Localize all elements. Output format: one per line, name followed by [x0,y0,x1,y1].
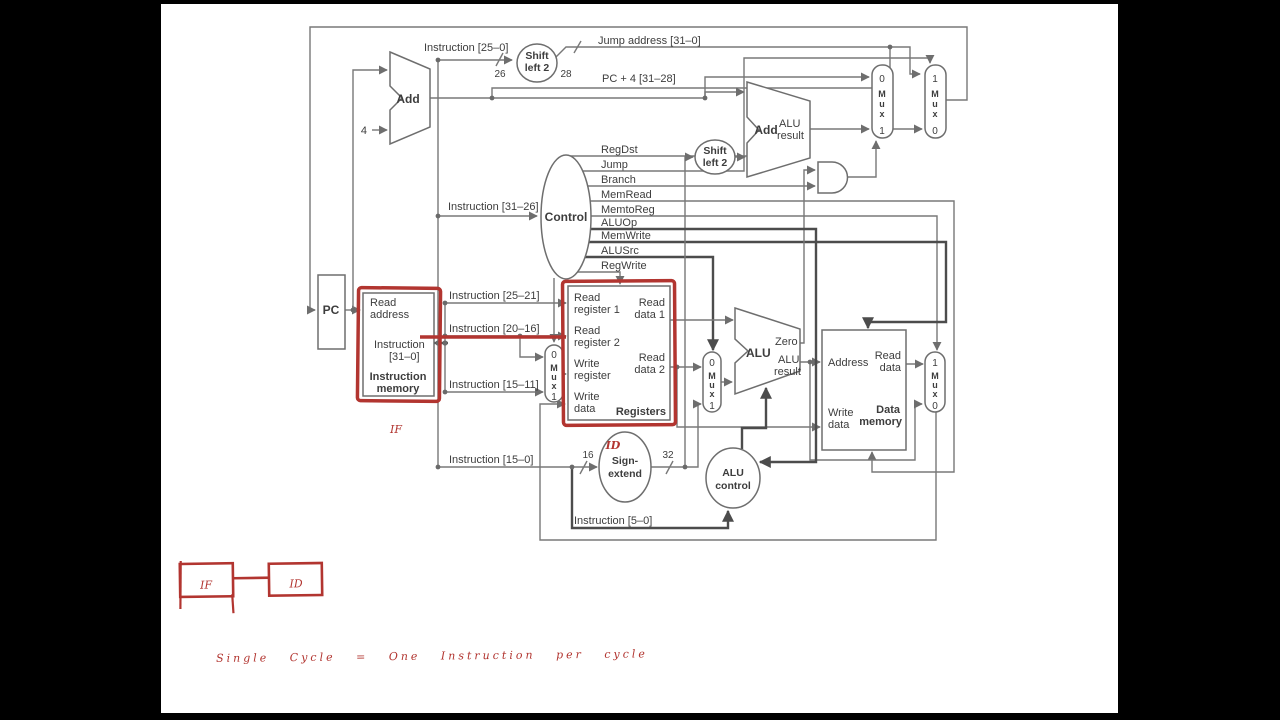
label-instr15-11: Instruction [15–11] [449,379,539,391]
svg-text:1: 1 [932,74,938,85]
signext-line1: Sign- [612,455,639,467]
shift1-line1: Shift [525,50,549,62]
svg-text:u: u [879,99,885,109]
dmem-wra: Write [828,407,853,419]
id-stage-label: ID [605,439,621,452]
label-instr25-21: Instruction [25–21] [449,290,540,302]
label-28: 28 [560,69,572,80]
svg-text:x: x [709,389,714,399]
regs-wra: Write [574,358,599,370]
mux-regdst-labels: 0 M u x 1 [550,350,558,403]
svg-text:M: M [878,89,886,99]
imem-title2: memory [377,383,421,395]
imem-read: Read [370,297,396,309]
wire-alucontrol-out [742,388,766,449]
regs-wda: Write [574,391,599,403]
shift2-line2: left 2 [703,157,728,169]
label-instr31-26: Instruction [31–26] [448,201,539,213]
regs-rr1b: register 1 [574,304,620,316]
regs-rd1a: Read [639,297,665,309]
control-label: Control [545,210,588,224]
signal-memread: MemRead [601,189,652,201]
if-box-tail-right [232,594,233,613]
mux-memtoreg-labels: 1 M u x 0 [931,358,939,412]
dmem-title2: memory [859,416,903,428]
add2-result: result [777,130,804,142]
letterbox-top [0,0,1280,4]
alu-zero: Zero [775,336,798,348]
regs-wdb: data [574,403,596,415]
regs-rr2a: Read [574,325,600,337]
imem-31-0: [31–0] [389,351,420,363]
svg-text:0: 0 [879,74,885,85]
if-box-label: IF [199,579,213,592]
aluctl-line1: ALU [722,467,744,479]
shift2-line1: Shift [703,145,727,157]
if-id-connector [233,578,270,579]
letterbox-right [1118,0,1280,720]
wire-jump-address [556,47,920,74]
pipeline-sketch: IF ID [180,559,323,614]
label-instr5-0: Instruction [5–0] [574,515,652,527]
alu-label: ALU [746,346,771,360]
alu-res1: ALU [778,354,799,366]
aluctl-line2: control [715,480,751,492]
label-16: 16 [582,450,594,461]
label-instr15-0: Instruction [15–0] [449,454,533,466]
signal-aluop: ALUOp [601,217,637,229]
signal-regwrite: RegWrite [601,260,647,272]
dmem-address: Address [828,357,869,369]
imem-instruction: Instruction [374,339,425,351]
mux-alusrc-labels: 0 M u x 1 [708,358,716,412]
svg-text:1: 1 [551,392,557,403]
signal-memwrite: MemWrite [601,230,651,242]
label-32: 32 [662,450,674,461]
mux-branch-labels: 0 M u x 1 [878,74,886,137]
letterbox-left [0,0,161,720]
label-instr20-16: Instruction [20–16] [449,323,540,335]
svg-text:u: u [932,99,938,109]
handwritten-sentence: Single Cycle = One Instruction per cycle [216,647,648,665]
wire-and-out [848,141,876,177]
regs-title: Registers [616,406,666,418]
wire-pc-to-add [353,70,387,310]
svg-text:1: 1 [879,126,885,137]
regs-rd2b: data 2 [634,364,665,376]
data-memory [822,330,906,450]
letterbox-bottom [0,713,1280,720]
svg-text:1: 1 [932,358,938,369]
label-26: 26 [494,69,506,80]
add1-label: Add [396,92,419,106]
signal-jump: Jump [601,159,628,171]
if-stage-label: IF [389,423,402,436]
signal-branch: Branch [601,174,636,186]
wire-zero [800,170,815,343]
dmem-rdb: data [880,362,902,374]
dmem-rda: Read [875,350,901,362]
if-box-tail-left [180,561,182,609]
svg-text:x: x [879,109,884,119]
video-frame: Instruction [25–0] Jump address [31–0] P… [0,0,1280,720]
svg-text:x: x [551,381,556,391]
regs-rr1a: Read [574,292,600,304]
wire-signext-to-mux [685,404,701,467]
wire-instr20-16-mux [520,336,543,357]
label-instr25-0: Instruction [25–0] [424,42,508,54]
datapath-diagram: Instruction [25–0] Jump address [31–0] P… [0,0,1280,720]
dmem-wrb: data [828,419,850,431]
imem-title1: Instruction [370,371,427,383]
pc-label: PC [323,303,340,317]
blocks [318,44,946,508]
regs-rd1b: data 1 [634,309,665,321]
dmem-title1: Data [876,404,901,416]
imem-address: address [370,309,410,321]
svg-text:0: 0 [551,350,557,361]
id-box-label: ID [288,577,303,590]
signal-memtoreg: MemtoReg [601,204,655,216]
wire-signext-to-shift [685,157,693,467]
svg-text:M: M [931,89,939,99]
shift1-line2: left 2 [525,62,550,74]
regs-rd2a: Read [639,352,665,364]
label-4: 4 [361,125,367,137]
svg-text:1: 1 [709,401,715,412]
label-pc-plus4: PC + 4 [31–28] [602,73,676,85]
svg-text:x: x [932,109,937,119]
and-gate [818,162,848,193]
wire-pc4-to-adder [705,92,744,98]
signal-regdst: RegDst [601,144,638,156]
mux-jump-labels: 1 M u x 0 [931,74,939,137]
svg-text:0: 0 [932,126,938,137]
regs-rr2b: register 2 [574,337,620,349]
svg-text:0: 0 [709,358,715,369]
label-jump-address: Jump address [31–0] [598,35,701,47]
signext-line2: extend [608,468,642,480]
svg-text:x: x [932,389,937,399]
add2-alu: ALU [779,118,800,130]
add2-label: Add [754,123,777,137]
svg-text:0: 0 [932,401,938,412]
signal-alusrc: ALUSrc [601,245,639,257]
alu-res2: result [774,366,801,378]
regs-wrb: register [574,370,611,382]
